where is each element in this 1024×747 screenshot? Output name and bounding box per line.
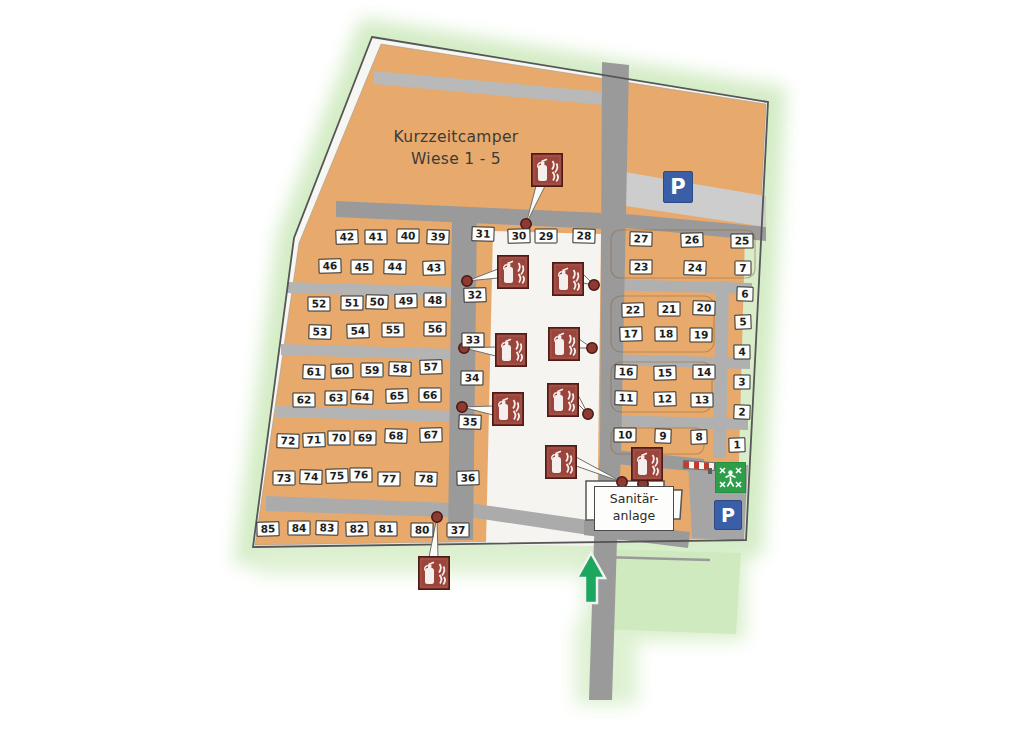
pitch-31: 31	[471, 226, 494, 242]
pitch-8: 8	[690, 429, 707, 444]
sanitary-label-line2: anlage	[595, 507, 673, 524]
pitch-58: 58	[388, 361, 411, 376]
area-label-line1: Kurzzeitcamper	[394, 126, 519, 148]
pitch-34: 34	[460, 370, 483, 385]
pitch-37: 37	[447, 523, 470, 538]
pitch-3: 3	[733, 374, 750, 389]
pitch-7: 7	[735, 261, 752, 276]
pitch-29: 29	[535, 229, 558, 244]
pitch-72: 72	[276, 433, 299, 448]
pitch-30: 30	[507, 228, 530, 243]
pitch-43: 43	[422, 260, 445, 276]
extinguisher-location-dot	[589, 280, 599, 290]
pitch-28: 28	[572, 228, 595, 243]
pitch-16: 16	[614, 364, 637, 380]
pitch-9: 9	[654, 428, 671, 444]
fire-extinguisher-icon	[552, 262, 584, 296]
campground-map: Kurzzeitcamper Wiese 1 - 5 Sanitär- anla…	[0, 0, 1024, 747]
pitch-74: 74	[299, 469, 322, 484]
pitch-36: 36	[456, 470, 479, 485]
pitch-26: 26	[680, 232, 703, 248]
fire-extinguisher-icon	[418, 556, 450, 590]
pitch-75: 75	[325, 468, 348, 484]
pitch-39: 39	[426, 229, 449, 245]
pitch-33: 33	[461, 332, 484, 347]
pitch-23: 23	[629, 259, 652, 274]
pitch-18: 18	[654, 326, 677, 341]
pitch-40: 40	[396, 228, 419, 243]
pitch-20: 20	[692, 300, 715, 315]
pitch-60: 60	[330, 363, 353, 378]
pitch-24: 24	[683, 260, 706, 276]
pitch-82: 82	[345, 521, 368, 537]
pitch-22: 22	[621, 302, 644, 317]
pitch-69: 69	[353, 430, 376, 445]
pitch-35: 35	[458, 414, 481, 430]
pitch-48: 48	[424, 293, 447, 308]
extinguisher-location-dot	[432, 512, 442, 522]
pitch-45: 45	[351, 260, 374, 275]
fire-extinguisher-icon	[547, 383, 579, 417]
pitch-62: 62	[292, 392, 315, 407]
pitch-15: 15	[653, 365, 676, 380]
pitch-50: 50	[365, 294, 388, 310]
pitch-71: 71	[302, 432, 325, 448]
fire-extinguisher-icon	[497, 255, 529, 289]
pitch-57: 57	[419, 359, 442, 375]
pitch-11: 11	[614, 390, 637, 405]
sanitary-label-line1: Sanitär-	[595, 490, 673, 507]
pitch-63: 63	[324, 390, 347, 405]
map-drawing	[0, 0, 1024, 747]
pitch-17: 17	[619, 326, 642, 342]
pitch-41: 41	[364, 229, 387, 244]
pitch-70: 70	[327, 430, 350, 445]
pitch-6: 6	[736, 286, 753, 301]
pitch-76: 76	[349, 467, 372, 482]
fire-extinguisher-icon	[548, 327, 580, 361]
pitch-55: 55	[381, 322, 404, 337]
pitch-80: 80	[410, 522, 433, 537]
pitch-68: 68	[384, 428, 407, 444]
area-label: Kurzzeitcamper Wiese 1 - 5	[394, 126, 519, 170]
pitch-5: 5	[734, 314, 751, 330]
pitch-42: 42	[335, 229, 358, 245]
pitch-1: 1	[728, 437, 745, 452]
pitch-77: 77	[377, 471, 400, 486]
extinguisher-location-dot	[583, 409, 593, 419]
pitch-49: 49	[394, 293, 417, 308]
pitch-78: 78	[414, 471, 437, 487]
pitch-32: 32	[463, 287, 486, 303]
pitch-64: 64	[350, 389, 373, 405]
south-meadow	[598, 549, 741, 634]
pitch-59: 59	[361, 363, 384, 378]
extinguisher-location-dot	[462, 276, 472, 286]
pitch-51: 51	[340, 295, 363, 310]
fire-extinguisher-icon	[492, 392, 524, 426]
pitch-73: 73	[273, 471, 296, 486]
sanitary-label: Sanitär- anlage	[594, 486, 674, 531]
pitch-84: 84	[288, 521, 311, 536]
pitch-53: 53	[308, 324, 331, 339]
fire-extinguisher-icon	[631, 447, 663, 481]
pitch-66: 66	[419, 388, 442, 403]
fire-extinguisher-icon	[531, 153, 563, 187]
parking-sign-icon: P	[714, 500, 742, 530]
pitch-19: 19	[689, 327, 712, 342]
pitch-21: 21	[658, 302, 681, 317]
pitch-25: 25	[730, 233, 753, 248]
pitch-52: 52	[307, 296, 330, 311]
extinguisher-location-dot	[587, 343, 597, 353]
pitch-44: 44	[383, 259, 406, 274]
pitch-85: 85	[256, 521, 279, 536]
pitch-61: 61	[302, 364, 325, 380]
playground-sign-icon	[715, 462, 746, 493]
pitch-83: 83	[315, 520, 338, 535]
pitch-81: 81	[374, 521, 397, 536]
pitch-27: 27	[629, 231, 652, 246]
pitch-46: 46	[318, 258, 341, 273]
barrier-post	[708, 468, 712, 474]
pitch-54: 54	[346, 323, 369, 339]
pitch-12: 12	[653, 391, 676, 407]
pitch-56: 56	[423, 321, 446, 336]
fire-extinguisher-icon	[495, 333, 527, 367]
pitch-67: 67	[419, 427, 442, 442]
parking-sign-icon: P	[663, 171, 693, 203]
pitch-13: 13	[690, 392, 713, 407]
pitch-2: 2	[733, 404, 750, 420]
pitch-14: 14	[693, 365, 716, 380]
pitch-10: 10	[613, 427, 636, 442]
pitch-4: 4	[733, 344, 750, 359]
fire-extinguisher-icon	[545, 445, 577, 479]
pitch-65: 65	[385, 388, 408, 403]
area-label-line2: Wiese 1 - 5	[394, 148, 519, 170]
extinguisher-location-dot	[457, 402, 467, 412]
